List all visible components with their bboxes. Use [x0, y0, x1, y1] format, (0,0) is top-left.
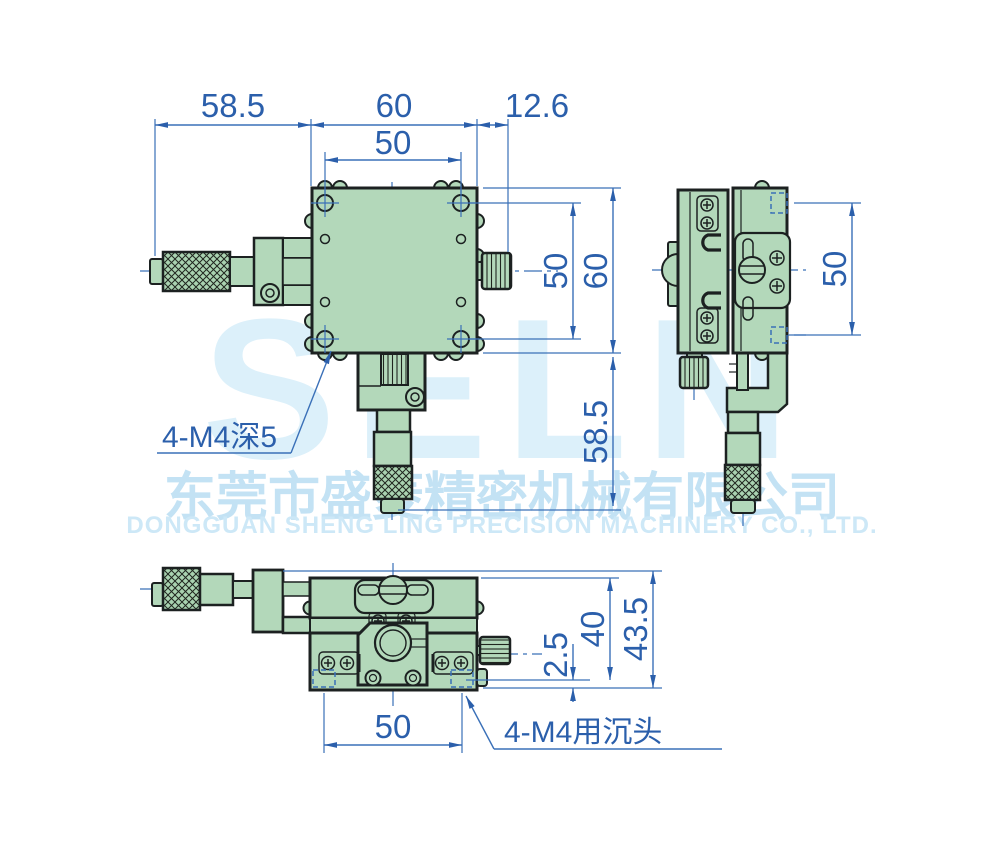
dim-front-hole-pitch-top: 50 — [375, 124, 412, 161]
side-center-screw — [739, 257, 765, 283]
dim-bottom-base-thickness: 2.5 — [537, 632, 574, 678]
dim-front-width-left: 58.5 — [201, 87, 265, 124]
dim-bottom-height-total: 43.5 — [617, 597, 654, 661]
side-micrometer-knurled-knob — [725, 465, 760, 500]
y-micrometer-lock-screw — [406, 388, 424, 406]
bottom-carriage-plate — [355, 576, 433, 613]
dim-side-hole-pitch: 50 — [816, 251, 853, 288]
drawing-canvas: SELN 东莞市盛菱精密机械有限公司 DONGGUAN SHENG LING P… — [0, 0, 1001, 853]
front-right-knob — [477, 253, 511, 289]
dim-bottom-height-inner: 40 — [574, 611, 611, 648]
bottom-center-boss — [358, 623, 427, 686]
bottom-view — [140, 563, 542, 706]
side-carriage-plate — [735, 233, 790, 320]
stage-top-platform — [312, 188, 477, 353]
note-bottom-countersink: 4-M4用沉头 — [504, 716, 662, 749]
dim-front-height-lower: 58.5 — [577, 400, 614, 464]
dim-front-hole-pitch-right: 50 — [537, 253, 574, 290]
dim-bottom-hole-pitch: 50 — [375, 708, 412, 745]
dim-front-width-right: 12.6 — [505, 87, 569, 124]
bottom-micrometer — [152, 568, 315, 633]
bottom-center-screw — [379, 576, 407, 604]
bottom-right-knob — [477, 637, 510, 664]
y-micrometer-knurled-knob — [374, 466, 412, 499]
y-micrometer-adjuster — [381, 354, 408, 385]
stage-drawing: SELN 东莞市盛菱精密机械有限公司 DONGGUAN SHENG LING P… — [0, 0, 1001, 853]
x-micrometer-lock-screw — [261, 284, 279, 302]
dim-front-height-body: 60 — [577, 253, 614, 290]
watermark-company-en: DONGGUAN SHENG LING PRECISION MACHINERY … — [126, 512, 877, 539]
note-front-thread: 4-M4深5 — [162, 421, 277, 454]
dim-front-width-body: 60 — [376, 87, 413, 124]
bottom-micrometer-knurled-knob — [163, 568, 200, 610]
x-micrometer-knurled-knob — [163, 252, 230, 291]
